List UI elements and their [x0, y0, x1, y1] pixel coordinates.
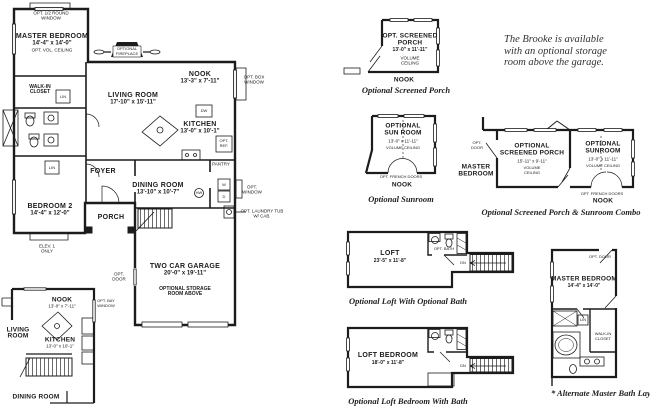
vanity — [580, 357, 604, 366]
label-sunroom-dims: 13'-0" x 11'-11" — [588, 156, 618, 161]
label-living-room-dims: 17'-10" x 15'-11" — [110, 100, 156, 107]
label-master-bedroom-dims: 14'-4" x 14'-0" — [568, 284, 601, 290]
porch-post — [86, 227, 92, 233]
sink — [432, 333, 439, 340]
label-nook-dims: 13'-3" x 7'-11" — [181, 79, 220, 86]
label-elev: ONLY — [41, 248, 53, 253]
garage-door-left — [142, 322, 182, 327]
label-dn: DN — [460, 261, 466, 265]
shower — [457, 330, 466, 350]
label-master-bedroom: MASTER BEDROOM — [551, 275, 617, 282]
label-porch-dims: 15'-11" x 9'-11" — [517, 158, 547, 163]
label-optional-sunroom: SUNROOM — [585, 147, 620, 154]
label-nook: NOOK — [394, 76, 414, 83]
label-foyer: FOYER — [90, 168, 116, 176]
french-doors — [591, 172, 622, 187]
note-line: with an optional storage — [504, 46, 607, 58]
label-dining-room-dims: 13'-10" x 10'-7" — [137, 190, 180, 197]
label-loft-bedroom-dims: 18'-0" x 11'-8" — [372, 361, 404, 367]
toilet — [26, 116, 34, 126]
stairs — [470, 359, 512, 373]
label-inset-living-room: ROOM — [7, 332, 28, 339]
label-volume-ceiling: CEILING — [524, 170, 540, 174]
label-opt-bath: OPT. BATH — [434, 247, 454, 251]
label-volume-ceiling: CEILING — [401, 60, 419, 65]
label-opt-half-round-window: WINDOW — [41, 15, 61, 20]
label-lin: LIN — [49, 166, 55, 170]
opt-loft-walls — [347, 232, 513, 287]
label-inset-kitchen-dims: 13'-0" x 10'-1" — [46, 343, 74, 348]
caption-optional-loft-bedroom: Optional Loft Bedroom With Bath — [348, 397, 468, 407]
label-inset-opt-bay-window: WINDOW — [97, 304, 115, 308]
label-loft-dims: 23'-5" x 11'-8" — [374, 259, 406, 265]
label-dw: DW — [201, 109, 208, 113]
label-opt-french-doors: OPT. FRENCH DOORS — [581, 192, 623, 196]
label-lin: LIN — [580, 318, 586, 322]
opt-window-symbol — [236, 180, 242, 198]
label-nook: NOOK — [593, 197, 613, 204]
label-optional-sunroom: SUN ROOM — [384, 129, 421, 136]
label-bedroom-2-dims: 14'-4" x 12'-0" — [30, 211, 69, 218]
kitchen-counter — [142, 116, 178, 146]
note-line: The Brooke is available — [504, 34, 604, 46]
label-porch: PORCH — [98, 214, 125, 222]
label-lin: LIN — [60, 95, 66, 99]
label-pantry: PANTRY — [212, 161, 230, 166]
closet — [428, 373, 454, 386]
porch-post — [128, 227, 134, 233]
label-master-bedroom: BEDROOM — [458, 170, 493, 177]
caption-optional-sunroom: Optional Sunroom — [368, 195, 433, 205]
label-opt-box-window: WINDOW — [244, 79, 264, 84]
label-opt-door: DOOR — [471, 145, 483, 149]
label-dryer: D — [223, 195, 226, 199]
label-inset-nook-dims: 13'-0" x 7'-11" — [48, 303, 75, 308]
range — [182, 150, 200, 160]
french-doors — [388, 159, 417, 174]
label-optional-fireplace: FIREPLACE — [116, 51, 138, 55]
note-line: room above the garage. — [504, 57, 604, 69]
label-walk-in-closet: CLOSET — [30, 90, 50, 96]
label-volume-ceiling: VOLUME CEILING — [386, 146, 420, 150]
vanity — [44, 112, 58, 124]
label-opt-door: DOOR — [112, 276, 126, 281]
floorplan-page: OPT. 1/2 ROUND WINDOW MASTER BEDROOM 14'… — [0, 0, 650, 410]
toilet — [30, 137, 38, 147]
kitchen-sink — [157, 127, 163, 133]
caption-combo: Optional Screened Porch & Sunroom Combo — [482, 208, 641, 218]
label-opt-vol-ceiling: OPT. VOL. CEILING — [32, 47, 73, 52]
label-walk-in-closet: CLOSET — [595, 337, 611, 341]
kitchen-sink — [55, 324, 60, 329]
sink — [432, 237, 439, 244]
label-garage-storage: ROOM ABOVE — [168, 292, 203, 298]
label-inset-dining-room: DINING ROOM — [13, 393, 60, 400]
label-loft: LOFT — [380, 250, 399, 258]
label-opt-french-doors: OPT. FRENCH DOORS — [380, 175, 422, 179]
label-dn: DN — [460, 364, 466, 368]
toilet — [446, 335, 452, 343]
label-opt-screened-porch: PORCH — [398, 39, 422, 46]
label-opt-ref: REF. — [220, 143, 229, 147]
label-opt-screened-porch-dims: 13'-0" x 11'-11" — [393, 48, 428, 54]
label-opt-laundry-tub: W/ CAB. — [253, 213, 270, 218]
label-opt-door: OPT. DOOR — [589, 255, 611, 259]
door-swings — [86, 114, 119, 203]
caption-optional-screened-porch: Optional Screened Porch — [362, 86, 450, 96]
label-kitchen-dims: 13'-0" x 10'-1" — [180, 129, 219, 136]
label-loft-bedroom: LOFT BEDROOM — [358, 352, 418, 360]
label-volume-ceiling: VOLUME CEILING — [586, 164, 620, 168]
stairs — [26, 358, 72, 376]
label-garage-dims: 20'-0" x 19'-11" — [164, 271, 206, 278]
label-opt-window: WINDOW — [242, 189, 262, 194]
vanity — [44, 134, 58, 146]
label-master-bedroom-dims: 14'-4" x 14'-0" — [32, 41, 71, 48]
garage-door-right — [188, 322, 228, 327]
toilet — [570, 365, 577, 374]
shower — [457, 234, 466, 254]
caption-alt-master-bath: * Alternate Master Bath Layout — [551, 389, 650, 399]
label-washer: W — [222, 183, 226, 187]
label-optional-sunroom-dims: 13'-0" x 11'-11" — [388, 138, 418, 143]
label-nook: NOOK — [392, 181, 412, 188]
label-optional-screened-porch: SCREENED PORCH — [500, 149, 564, 156]
caption-optional-loft: Optional Loft With Optional Bath — [349, 297, 467, 307]
label-hw: HW — [196, 191, 203, 195]
stairs — [138, 209, 172, 228]
